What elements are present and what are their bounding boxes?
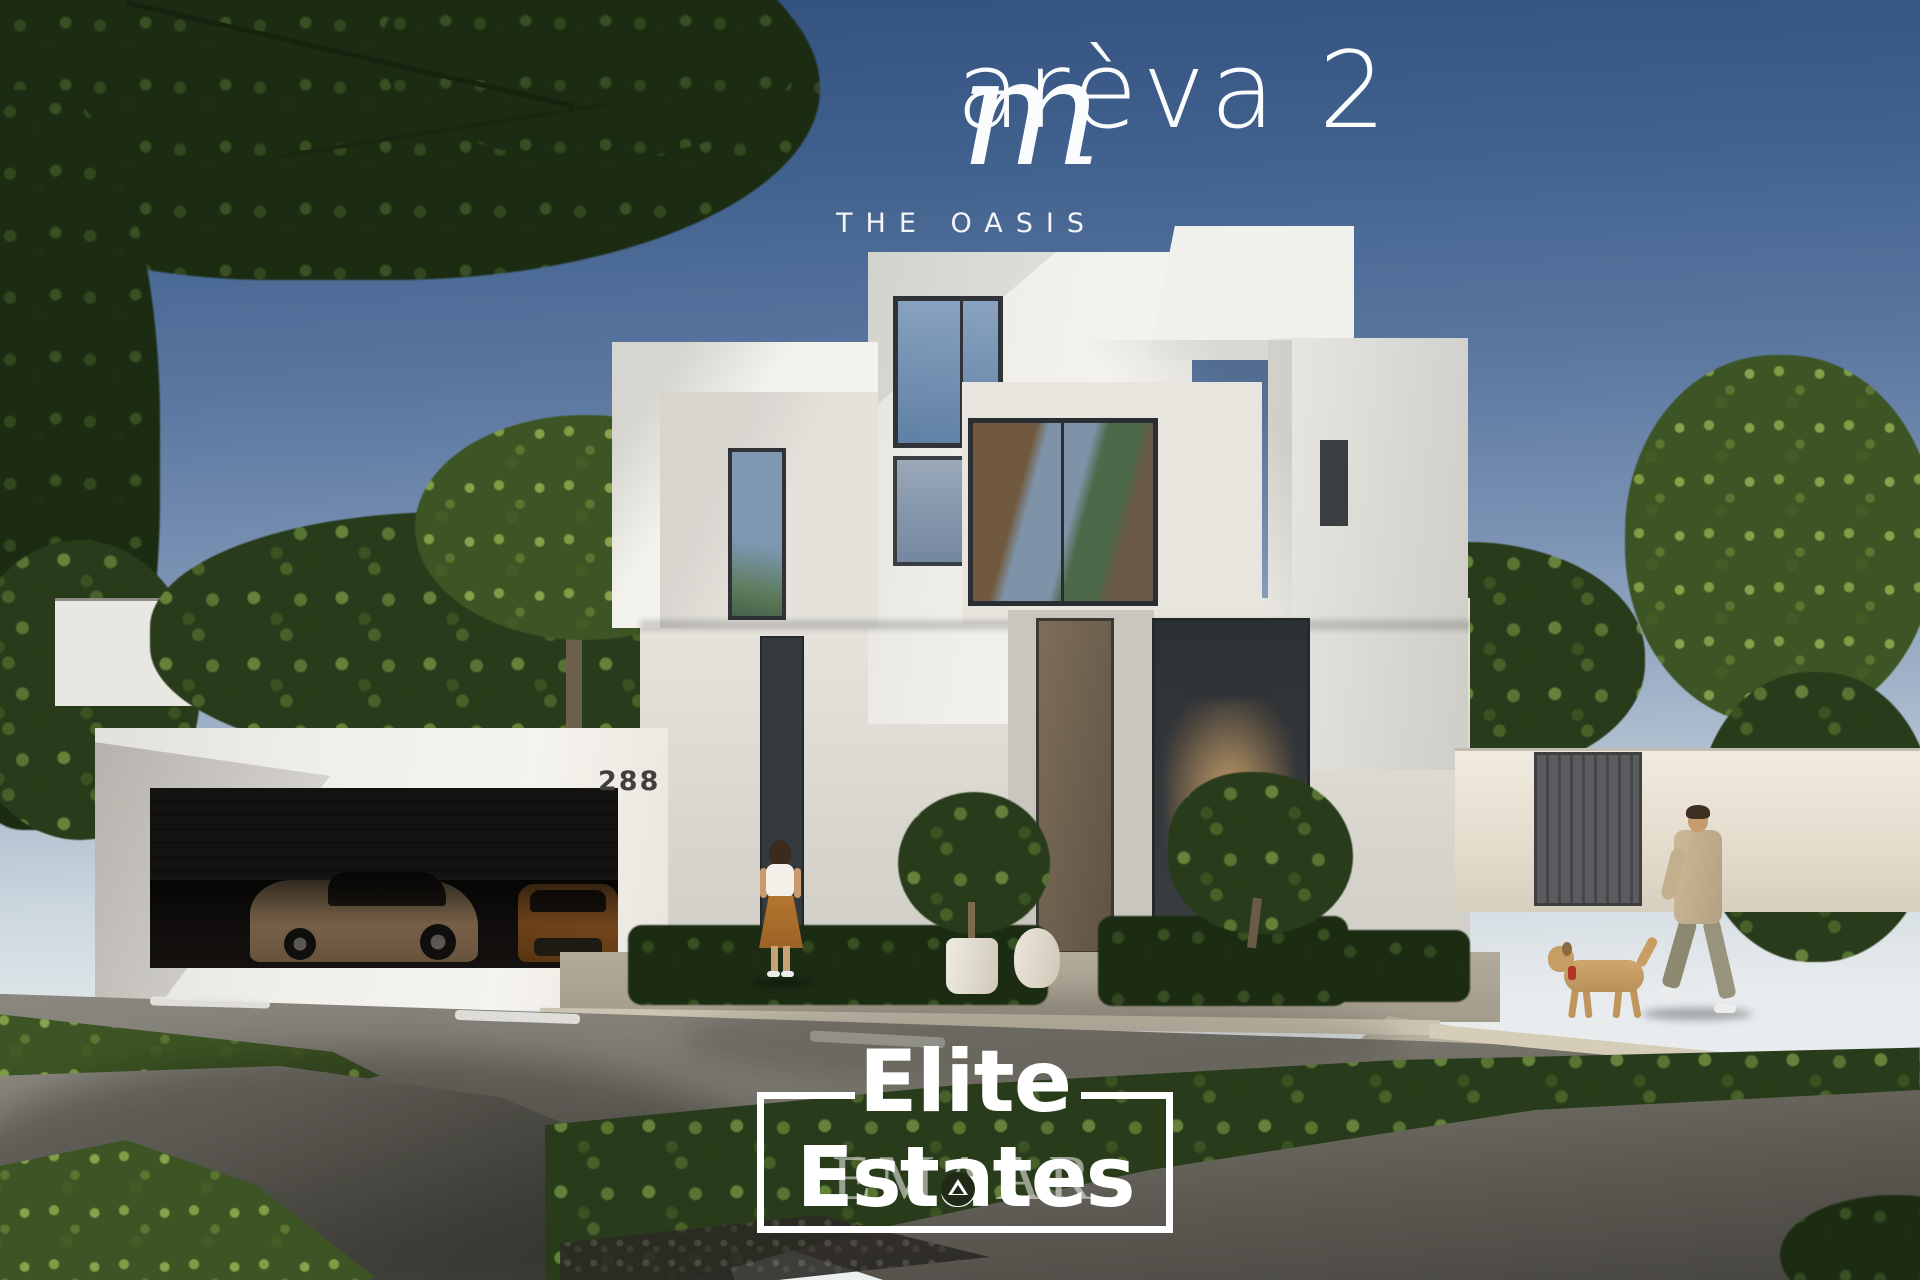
triangle-inner [952, 1185, 964, 1194]
woman-skirt [759, 896, 803, 948]
woman-leg [783, 946, 790, 972]
dog-ear [1562, 942, 1572, 956]
woman-top [766, 864, 794, 898]
project-logo-name: arèva 2 [956, 38, 1391, 144]
woman-arm [794, 868, 801, 898]
watermark-line1: Elite [859, 1042, 1071, 1124]
dog-body [1564, 960, 1644, 992]
man-shoe [1714, 1004, 1736, 1013]
woman-hair [769, 840, 791, 866]
render-canvas: 288 [0, 0, 1920, 1280]
garage-shadow-overlay [150, 788, 618, 968]
woman-shoe [781, 971, 794, 977]
dog-figure [1548, 938, 1666, 1022]
agency-watermark: EMAAR Elite Estates [757, 1040, 1173, 1240]
shadow [752, 978, 812, 988]
right-wing-window [1320, 440, 1348, 526]
dog-leg [1629, 988, 1641, 1019]
house-number: 288 [598, 766, 658, 797]
man-leg [1661, 918, 1698, 990]
planter-vase [1014, 928, 1060, 988]
woman-shoe [767, 971, 780, 977]
dog-leg [1582, 988, 1592, 1019]
dog-leg [1612, 988, 1622, 1019]
cube-left-window [728, 448, 786, 620]
side-gate [1534, 752, 1642, 906]
entry-door [1036, 618, 1114, 954]
woman-leg [771, 946, 778, 972]
palm-canopy-right [1625, 355, 1920, 725]
planter-pot [946, 938, 998, 994]
woman-figure [756, 840, 808, 986]
watermark-frame-top-right-segment [1081, 1092, 1173, 1099]
man-hair [1686, 805, 1710, 819]
stylized-a-triangle-icon [941, 1172, 975, 1206]
watermark-frame-top-left-segment [757, 1092, 855, 1099]
dog-leg [1568, 988, 1579, 1019]
man-jacket [1674, 830, 1722, 924]
dog-collar [1568, 966, 1576, 980]
hedge-front-right [1098, 916, 1348, 1006]
project-tagline: THE OASIS [0, 208, 1920, 239]
man-figure [1652, 808, 1748, 1020]
hedge-front-far-right [1330, 930, 1470, 1002]
cube-right-window [968, 418, 1158, 606]
man-leg [1702, 918, 1737, 1000]
